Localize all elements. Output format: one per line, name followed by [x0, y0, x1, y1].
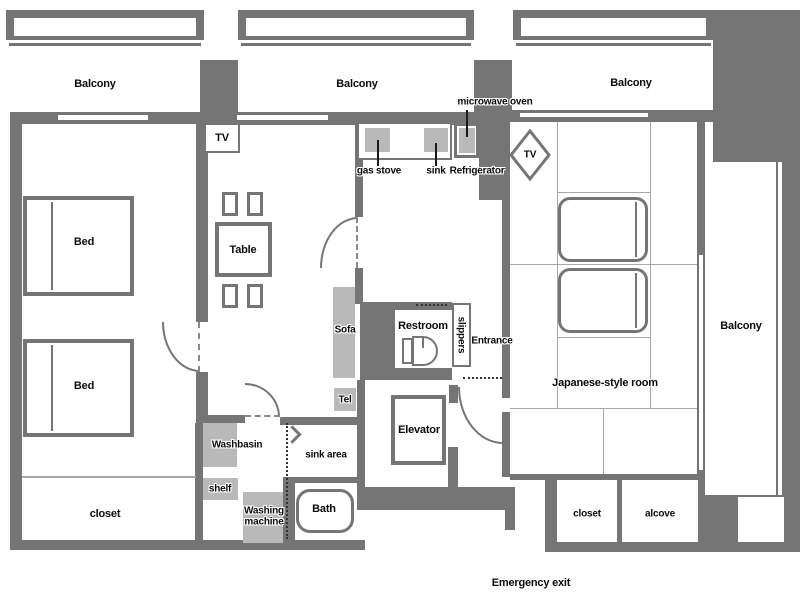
wall-restroom-bottom	[360, 368, 452, 380]
outer-wall-left	[10, 112, 22, 550]
wall-kitchen-left	[355, 268, 363, 304]
dotted-line	[416, 304, 447, 306]
corner-block	[713, 10, 800, 162]
railing-slot	[246, 18, 466, 36]
door-arc-kitchen	[320, 217, 358, 268]
window-slot	[699, 255, 703, 470]
block-balcony-end	[705, 495, 738, 543]
window-slot	[520, 113, 648, 117]
leader-line	[466, 110, 468, 137]
railing-top-mid	[238, 10, 474, 40]
tatami-line	[557, 192, 650, 193]
wall-alcove-right	[698, 478, 705, 543]
window-slot	[58, 115, 148, 120]
futon-pillow-line	[635, 202, 637, 257]
label-balcony-top-mid: Balcony	[336, 78, 377, 90]
toilet-detail-line	[422, 338, 424, 348]
label-emergency-exit: Emergency exit	[492, 577, 571, 589]
chair	[222, 192, 238, 216]
label-sink: sink	[426, 166, 445, 177]
label-shelf: shelf	[209, 484, 231, 495]
label-balcony-top-right: Balcony	[610, 77, 651, 89]
label-closet-japanese: closet	[573, 509, 601, 520]
chair	[247, 192, 263, 216]
outer-wall-bottom	[545, 542, 800, 552]
floor-plan: Balcony Balcony Balcony Balcony TV TV Be…	[0, 0, 800, 600]
leader-line	[435, 143, 437, 166]
dotted-line	[463, 377, 502, 379]
railing-slot	[14, 18, 196, 36]
label-elevator: Elevator	[398, 424, 440, 436]
label-bed-upper: Bed	[74, 236, 94, 248]
label-sofa: Sofa	[335, 325, 356, 336]
door-arc-bedroom	[162, 322, 200, 372]
railing-line	[9, 43, 201, 46]
tatami-line	[557, 122, 558, 408]
futon	[558, 268, 648, 333]
wall-bath-top	[287, 477, 365, 483]
label-bath: Bath	[312, 503, 336, 515]
label-entrance: Entrance	[471, 336, 512, 347]
label-refrigerator: Refrigerator	[450, 166, 505, 177]
label-bed-lower: Bed	[74, 380, 94, 392]
wall-closet-alcove	[617, 480, 622, 542]
label-restroom: Restroom	[398, 320, 448, 332]
tatami-line	[557, 337, 650, 338]
futon-pillow-line	[635, 273, 637, 328]
wall-washroom-top	[203, 415, 245, 423]
door-leaf-dashed	[356, 217, 358, 268]
railing-top-left	[6, 10, 204, 40]
label-tv-living: TV	[215, 132, 229, 144]
label-washbasin: Washbasin	[212, 440, 263, 451]
label-balcony-right: Balcony	[720, 320, 761, 332]
label-gas-stove: gas stove	[357, 166, 401, 177]
wall-kitchen-chunk	[479, 122, 510, 200]
wall-sinkarea-top	[280, 417, 365, 425]
label-tv-japanese: TV	[524, 150, 536, 161]
chair	[247, 284, 263, 308]
door-arc-entrance	[458, 387, 503, 444]
railing-line	[241, 43, 471, 46]
window-slot	[237, 115, 328, 120]
tatami-line	[650, 122, 651, 408]
label-washing-machine: Washing machine	[240, 507, 288, 528]
tatami-line	[510, 264, 697, 265]
doorway-gap	[502, 398, 510, 412]
bed-pillow-line	[51, 202, 53, 290]
bed-pillow-line	[51, 345, 53, 431]
wall-washroom-left	[195, 423, 203, 543]
futon	[558, 197, 648, 262]
railing-line	[516, 43, 711, 46]
door-leaf-dashed	[198, 322, 200, 372]
label-closet-bedroom: closet	[90, 508, 121, 520]
leader-line	[377, 140, 379, 166]
balcony-railing-line	[776, 162, 778, 497]
railing-top-right	[513, 10, 714, 40]
label-slippers: slippers	[456, 317, 467, 354]
closet-boundary-line	[22, 476, 196, 478]
wall-closet-left	[545, 480, 557, 542]
label-japanese-room: Japanese-style room	[552, 377, 658, 389]
tatami-line	[603, 408, 604, 474]
chair	[222, 284, 238, 308]
door-arc-washroom	[245, 383, 280, 417]
label-alcove: alcove	[645, 509, 675, 520]
label-sink-area: sink area	[305, 450, 347, 461]
railing-slot	[521, 18, 706, 36]
label-tel: Tel	[338, 395, 351, 406]
wall-elevator-left	[357, 380, 365, 490]
wall-japanese-bottom	[510, 474, 705, 480]
label-balcony-top-left: Balcony	[74, 78, 115, 90]
door-jamb	[449, 385, 458, 403]
label-table: Table	[230, 244, 257, 256]
label-microwave-oven: microwave oven	[457, 97, 532, 108]
wall-hall-band	[357, 487, 515, 510]
wall-exit	[505, 510, 515, 530]
balcony-railing-line	[782, 162, 784, 497]
outer-wall-bottom	[10, 540, 365, 550]
toilet-bowl	[412, 336, 438, 366]
door-leaf-dashed	[245, 415, 280, 417]
outer-wall-right	[784, 162, 800, 552]
door-jamb	[448, 447, 458, 490]
